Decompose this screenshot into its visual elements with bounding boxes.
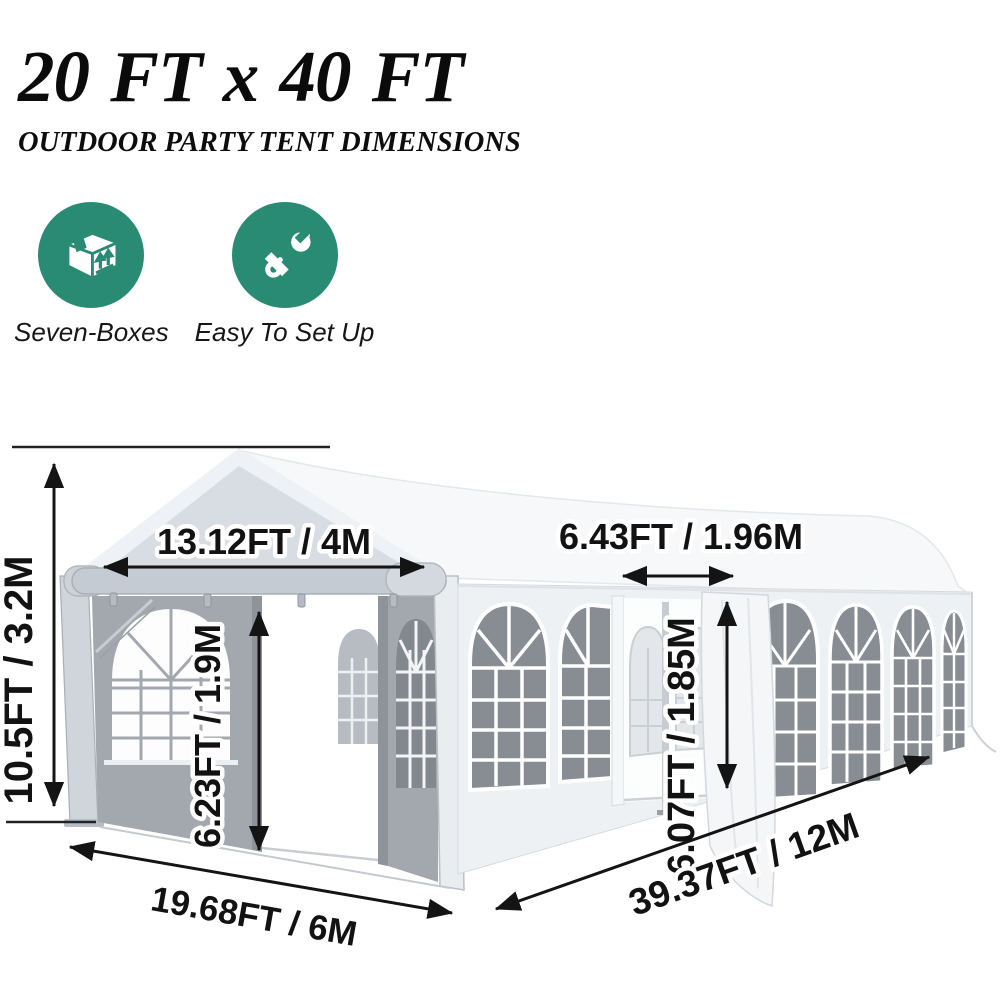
product-infographic: 20 FT x 40 FT OUTDOOR PARTY TENT DIMENSI… <box>0 0 1000 1000</box>
dim-label-front-door-height: 6.23FT / 1.9M <box>187 624 228 848</box>
front-right-window <box>396 619 436 788</box>
side-window-4 <box>830 605 882 786</box>
side-window-2 <box>560 605 612 782</box>
side-window-1 <box>470 604 548 790</box>
side-window-6 <box>942 611 966 754</box>
interior-far-window <box>338 629 380 744</box>
side-window-5 <box>892 607 934 770</box>
dim-label-side-door-width: 6.43FT / 1.96M <box>559 516 803 557</box>
tent-front-wall <box>60 563 464 890</box>
dim-label-side-door-height: 6.07FT / 1.85M <box>661 617 703 875</box>
dim-label-front-top-width: 13.12FT / 4M <box>157 521 371 562</box>
tent-dimension-diagram: 10.5FT / 3.2M 13.12FT / 4M 6.23FT / 1.9M… <box>0 0 1000 1000</box>
dim-label-total-height: 10.5FT / 3.2M <box>0 556 41 805</box>
front-left-leg <box>60 576 98 824</box>
